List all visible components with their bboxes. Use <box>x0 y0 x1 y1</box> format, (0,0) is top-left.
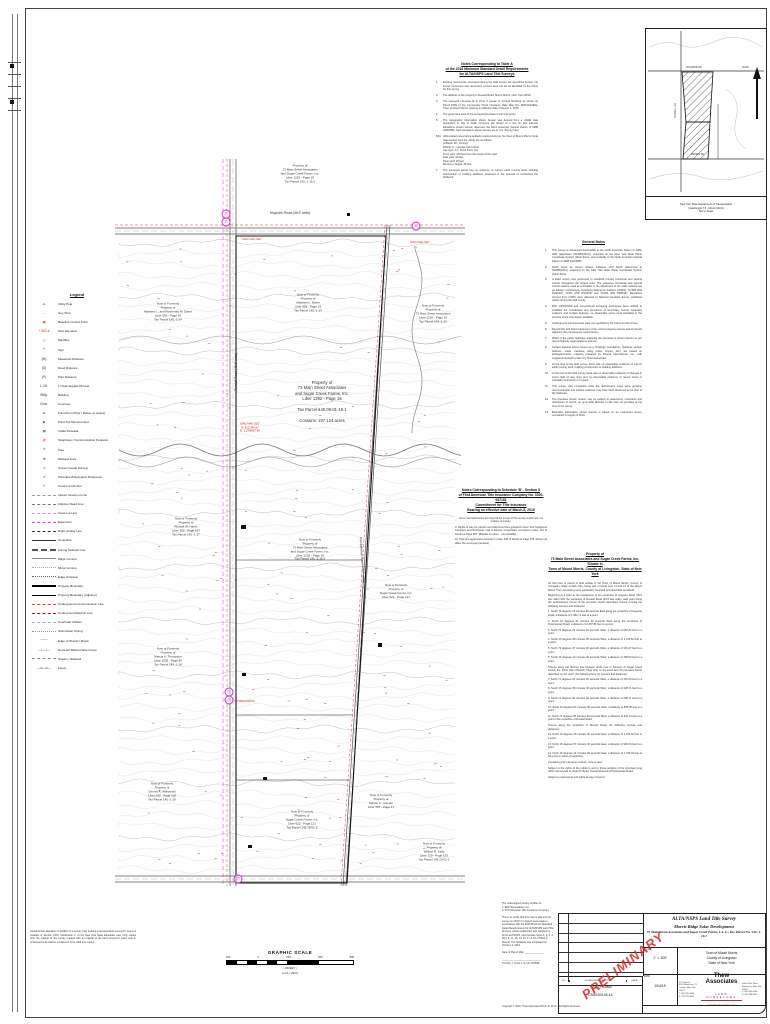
note-text: The address of the property is Russell R… <box>443 94 538 98</box>
legend-symbol: → <box>30 312 58 315</box>
legend-row: ⑧ Schedule B Exception Reference <box>30 473 124 482</box>
description-paragraph: Thence along the centerline of Russell R… <box>548 724 642 731</box>
note-number: 2. <box>545 266 552 277</box>
legend-symbol <box>30 567 58 570</box>
description-title-line4: Town of Mount Morris, County of Livingst… <box>548 567 642 577</box>
legend-label: Culvert (Aerial Survey) <box>58 467 88 470</box>
firm-subtitle: LAND SURVEYORS <box>701 993 742 1001</box>
legend-row: ● Found Iron (Pipe / Rebar, et cetera) <box>30 409 124 418</box>
legend-label: Underground Electric Line <box>58 612 93 615</box>
legend-row: ᴖᴖᴖᴖ Edge of Woods / Brush <box>30 636 124 645</box>
legend-row: Edge of Gravel <box>30 573 124 582</box>
legend-row: Stormwater Piping <box>30 627 124 636</box>
note-text: At the time of the field survey there wa… <box>552 363 642 370</box>
description-paragraph: 10. South 16 degrees 04 minutes 30 secon… <box>548 706 642 713</box>
legend-row: Bldg. Building <box>30 391 124 400</box>
note-text: The surveyed premises lie in Zone X (are… <box>443 100 538 111</box>
legend-row: Property Boundary (Adjoiner) <box>30 591 124 600</box>
legend-row: (M) Measured Distance <box>30 355 124 364</box>
schedule-b-note: Items not listed below are beyond the sc… <box>455 517 547 524</box>
legend-symbol <box>30 603 58 606</box>
description-paragraph: Containing 197.124 acres of land, more o… <box>548 761 642 765</box>
legend-label: Measured Distance <box>58 358 84 361</box>
legend-symbol: -●- <box>30 303 58 306</box>
legend-symbol <box>30 612 58 615</box>
legend-label: Centerline <box>58 539 72 542</box>
scale-tick-label: 200 <box>286 956 290 959</box>
location-cell: Town of Mount Morris County of Livingsto… <box>677 947 765 974</box>
inset-caption: New York State Department of Transportat… <box>646 196 766 220</box>
legend-symbol: ◻ <box>30 339 58 342</box>
general-note-item: 2. North arrow as shown hereon indicates… <box>545 266 642 277</box>
legend-symbol: ■ <box>30 421 58 424</box>
project-number-cell: PROJECT NUMBER CN2040/145-16 <box>559 985 643 1013</box>
revision-table <box>559 914 644 976</box>
description-paragraph: 3. North 74 degrees 23 minutes 30 second… <box>548 629 642 636</box>
description-paragraph: 14. North 16 degrees 11 minutes 00 secon… <box>548 752 642 759</box>
legend-label: Cable Pedestal <box>58 430 78 433</box>
legend-symbol <box>30 494 58 497</box>
legend-label: Stormwater Piping <box>58 630 83 633</box>
legend-symbol: (P) <box>30 376 58 379</box>
road-russell <box>227 159 236 886</box>
legend-symbol <box>30 621 58 624</box>
legend-label: Mail Box <box>58 339 70 342</box>
legend-symbol: + 582.4 <box>30 330 58 333</box>
drawing-title-line2: Morris Ridge Solar Development <box>643 924 765 929</box>
general-note-item: 12. The premises shown hereon may be sub… <box>545 398 642 409</box>
drawing-title-line1: ALTA/NSPS Land Title Survey <box>643 917 765 922</box>
legend-label: Fence <box>58 667 66 670</box>
title-block: NO. LOCATION/DESCRIPTION DATE PROJECT NU… <box>558 913 766 1014</box>
description-paragraph: Subject to easements and rights-of-way o… <box>548 776 642 780</box>
legend-label: Minor Contour <box>58 567 77 570</box>
general-note-item: 7. Width of the public highways adjoinin… <box>545 337 642 344</box>
firm-address-right: Office Park West Watertown, New York 136… <box>742 983 765 997</box>
note-number: 4. <box>436 113 443 117</box>
legend-symbol: ᴖᴖᴖᴖ <box>30 639 58 642</box>
contour-lines <box>119 239 455 874</box>
scale-label: SCALE <box>643 948 677 951</box>
road-presbyterian <box>341 225 390 886</box>
description-paragraph: 1. South 74 degrees 19 minutes 30 second… <box>548 610 642 617</box>
legend-label: Remnant Barbed Wire Fence <box>58 649 97 652</box>
note-text: North arrow as shown hereon indicates Gr… <box>552 266 642 277</box>
note-number: 4. <box>545 305 552 319</box>
legend-label: Stream / Wetland <box>58 658 81 661</box>
graphic-scale-title: GRAPHIC SCALE <box>226 950 354 955</box>
legend-symbol: ⊃ <box>30 467 58 470</box>
legend-symbol: ▤ <box>30 430 58 433</box>
table-a-item: 5. The topographic information shown her… <box>436 119 538 133</box>
note-text: The gross land area of the surveyed prem… <box>443 113 538 117</box>
legend-row: Major Contour <box>30 555 124 564</box>
date-label: DATE <box>643 975 677 978</box>
legend-row: ✳ Tree <box>30 446 124 455</box>
legend-row: ⊢ Sign <box>30 345 124 354</box>
road-hogmire <box>115 225 465 234</box>
general-note-item: 6. Record title and deed references of t… <box>545 328 642 335</box>
note-text: This survey was completed while the land… <box>552 385 642 396</box>
graphic-scale-bar <box>226 960 354 966</box>
note-text: RTK GPS/GNSS and conventional surveying … <box>552 305 642 319</box>
legend-symbol <box>30 548 58 551</box>
graphic-scale-ratio: 1 inch = 200 ft. <box>226 972 354 976</box>
table-a-item: 7. The surveyed parcel has no evidence o… <box>436 169 538 180</box>
legend-row: ▥ Telephone / Communication Pedestal <box>30 436 124 445</box>
legend-row: ◻ Mail Box <box>30 336 124 345</box>
north-arrow <box>753 67 761 119</box>
description-paragraph: Subject to the rights of the public in a… <box>548 767 642 774</box>
note-number: 11. <box>545 385 552 396</box>
legend-label: Schedule B Exception Reference <box>58 476 102 479</box>
legend-symbol <box>30 585 58 588</box>
location-line1: Town of Mount Morris <box>678 951 765 955</box>
description-paragraph: Thence along the division line between l… <box>548 666 642 677</box>
note-text: Width of the public highways adjoining t… <box>552 337 642 344</box>
legend-row: Underground Communication Line <box>30 600 124 609</box>
legend-symbol <box>30 512 58 515</box>
surveyor-law-note: Unauthorized alteration or addition to a… <box>30 930 136 944</box>
note-text: Surface features shown hereon (e.g. buil… <box>552 346 642 360</box>
legend-symbol <box>30 558 58 561</box>
description-paragraph: 7. North 74 degrees 02 minutes 00 second… <box>548 678 642 685</box>
legend-row: 5 Great Lot Number <box>30 482 124 491</box>
drawing-title-line3: 73 Main Street Associates and Sugar Cree… <box>643 930 765 938</box>
description-paragraph: 9. North 74 degrees 02 minutes 00 second… <box>548 697 642 704</box>
schedule-b-item: 10. Pipe line agreement recorded in Libe… <box>455 538 547 545</box>
firm-logo: Thew Associates LAND SURVEYORS www.ThewA… <box>701 973 742 1007</box>
legend-symbol: ⊢ <box>30 348 58 351</box>
note-number: 9. <box>545 363 552 370</box>
location-map-inset: HOGMIRE RD ROAD PERRIN RD RUSSELL RD New… <box>645 28 767 220</box>
note-text: Abbreviated notes listing setback requir… <box>443 135 538 167</box>
note-text: The topographic information shown hereon… <box>443 119 538 133</box>
table-a-item: 2. The address of the property is Russel… <box>436 94 538 98</box>
drawing-title-cell: ALTA/NSPS Land Title Survey Morris Ridge… <box>643 914 765 947</box>
firm-address-left: P.O. Box 61 4051 State Hwy. 11 Canton, N… <box>678 982 701 999</box>
property-boundary <box>236 236 386 883</box>
legend-symbol: (D) <box>30 367 58 370</box>
legend-row: ■ Point Not Monumented <box>30 418 124 427</box>
legend-row: —o—o— Fence <box>30 664 124 673</box>
revision-col-description: LOCATION/DESCRIPTION <box>570 980 626 982</box>
scale-tick-label: 800 <box>350 956 354 959</box>
copyright-line: Copyright © 2019, Thew Associates PE & L… <box>502 1005 662 1008</box>
legend-row: + 582.4 Spot Elevation <box>30 327 124 336</box>
note-text: Boundary information shown hereon is bas… <box>552 411 642 418</box>
note-text: A static survey was performed to establi… <box>552 278 642 303</box>
legend-label: Great Lot Number <box>58 485 82 488</box>
legend-row: ▣ Baseline Control Point <box>30 318 124 327</box>
graphic-scale: GRAPHIC SCALE 2000200400800 ( IN FEET ) … <box>226 950 354 976</box>
legend-row: Overhead Utilities <box>30 618 124 627</box>
legend-label: Property Boundary (Adjoiner) <box>58 594 97 597</box>
revision-col-no: NO. <box>559 980 570 982</box>
legend-label: Building <box>58 394 69 397</box>
table-a-heading: Notes Corresponding to Table A of the 20… <box>436 62 538 77</box>
firm-cell: P.O. Box 61 4051 State Hwy. 11 Canton, N… <box>677 974 765 1005</box>
legend-symbol <box>30 658 58 661</box>
description-paragraph: Beginning at a point at the intersection… <box>548 594 642 608</box>
note-number: 6. <box>545 328 552 335</box>
elevation-ticks <box>126 249 449 864</box>
general-note-item: 10. At the time of the field survey ther… <box>545 372 642 383</box>
general-note-item: 5. Underground improvements were not spe… <box>545 322 642 326</box>
legend-label: Point Not Monumented <box>58 421 89 424</box>
legend-row: —x—x— Remnant Barbed Wire Fence <box>30 646 124 655</box>
date-value: 10/4/19 <box>643 984 677 988</box>
general-note-item: 1. This survey is referenced horizontall… <box>545 249 642 263</box>
legend-symbol <box>30 530 58 533</box>
note-number: 5. <box>436 119 443 133</box>
table-a-item: 6(b). Abbreviated notes listing setback … <box>436 135 538 167</box>
legend-row: Property Boundary <box>30 582 124 591</box>
scale-value: 1" = 200' <box>643 956 677 960</box>
date-cell: DATE 10/4/19 <box>643 974 677 1005</box>
description-paragraph: 4. South 15 degrees 58 minutes 00 second… <box>548 638 642 645</box>
description-paragraph: 8. South 15 degrees 58 minutes 00 second… <box>548 687 642 694</box>
note-number: 10. <box>545 372 552 383</box>
legend-row: Stream / Wetland <box>30 655 124 664</box>
legend-symbol <box>30 521 58 524</box>
note-number: 5. <box>545 322 552 326</box>
legend-symbol: ▥ <box>30 439 58 442</box>
legend: Legend -●- Utility Pole → Guy Wire ▣ Bas… <box>30 292 124 673</box>
inset-road-label-hogmire: HOGMIRE RD <box>686 66 702 69</box>
legend-label: Edge of Gravel <box>58 576 78 579</box>
description-title: Property of 73 Main Street Associates an… <box>548 552 642 578</box>
legend-symbol: —x—x— <box>30 649 58 652</box>
legend-label: Deed Distance <box>58 367 78 370</box>
note-number: 12. <box>545 398 552 409</box>
revision-header-row: NO. LOCATION/DESCRIPTION DATE <box>559 976 643 985</box>
note-text: This survey is referenced horizontally t… <box>552 249 642 263</box>
woods-stream-band <box>119 247 461 467</box>
description-paragraph: All that tract or parcel of land situate… <box>548 582 642 593</box>
legend-label: Utility Pole <box>58 303 72 306</box>
scale-tick-label: 200 <box>226 956 230 959</box>
description-paragraph: 2. South 16 degrees 41 minutes 00 second… <box>548 620 642 627</box>
schedule-b-heading-line2: of First American Title Insurance Compan… <box>455 493 547 503</box>
inset-road-label-russell: RUSSELL RD <box>674 103 677 118</box>
legend-label: Major Contour <box>58 558 77 561</box>
note-number: 7. <box>545 337 552 344</box>
legend-symbol <box>30 503 58 506</box>
certification-block: The undersigned hereby certifies to: 1. … <box>502 902 554 965</box>
legend-row: Zoning Setback Line <box>30 546 124 555</box>
legend-label: Underground Communication Line <box>58 603 104 606</box>
legend-row: 1 CH. 1 Chain Equals 66 Feet <box>30 382 124 391</box>
legend-symbol: 5 <box>30 485 58 488</box>
legend-row: ▤ Cable Pedestal <box>30 427 124 436</box>
table-a-item: 4. The gross land area of the surveyed p… <box>436 113 538 117</box>
legend-row: → Guy Wire <box>30 309 124 318</box>
legend-row: Minor Contour <box>30 564 124 573</box>
general-note-item: 9. At the time of the field survey there… <box>545 363 642 370</box>
legend-symbol: (M) <box>30 358 58 361</box>
legend-label: Great Lot Line <box>58 512 77 515</box>
legend-title: Legend <box>30 292 124 297</box>
schedule-b-heading: Notes Corresponding to Schedule 'B' - Se… <box>455 488 547 514</box>
legend-symbol: Bldg. <box>30 394 58 397</box>
legend-row: -●- Utility Pole <box>30 300 124 309</box>
note-text: Existing monuments recovered during the … <box>443 81 538 92</box>
general-note-item: 8. Surface features shown hereon (e.g. b… <box>545 346 642 360</box>
legend-label: Plan Distance <box>58 376 77 379</box>
project-number-label: PROJECT NUMBER <box>559 986 642 989</box>
inset-road-label-perrin: PERRIN RD <box>691 153 704 156</box>
legend-label: Zoning Setback Line <box>58 549 85 552</box>
general-notes: General Notes 1. This survey is referenc… <box>545 240 642 420</box>
table-a-notes: Notes Corresponding to Table A of the 20… <box>436 62 538 182</box>
legend-row: Easement <box>30 518 124 527</box>
legend-symbol: Conc. <box>30 403 58 406</box>
general-note-item: 3. A static survey was performed to esta… <box>545 278 642 303</box>
legend-label: Overhead Utilities <box>58 621 82 624</box>
legend-row: Adjoiner Deed Line <box>30 500 124 509</box>
project-number-value: CN2040/145-16 <box>559 993 642 997</box>
inset-parcel-hatch-upper <box>682 72 713 122</box>
inset-road-label-road: ROAD <box>742 66 749 69</box>
legend-symbol: ⑧ <box>30 476 58 479</box>
legend-label: Tree <box>58 449 64 452</box>
note-number: 6(b). <box>436 135 443 167</box>
note-number: 13. <box>545 411 552 418</box>
schedule-b-item: 9. Rights of way for electric and teleph… <box>455 526 547 537</box>
legend-symbol: 1 CH. <box>30 385 58 388</box>
note-text: The premises shown hereon may be subject… <box>552 398 642 409</box>
note-number: 1. <box>545 249 552 263</box>
scale-tick-label: 400 <box>318 956 322 959</box>
note-text: Record title and deed references of the … <box>552 328 642 335</box>
note-number: 3. <box>436 100 443 111</box>
legend-row: Underground Electric Line <box>30 609 124 618</box>
legend-symbol: ● <box>30 412 58 415</box>
legend-label: Spot Elevation <box>58 330 77 333</box>
note-number: 2. <box>436 94 443 98</box>
legend-label: Telephone / Communication Pedestal <box>58 439 108 442</box>
legend-label: Baseline Control Point <box>58 321 88 324</box>
legend-label: Adjoiner Deed Line <box>58 503 84 506</box>
legend-row: Centerline <box>30 536 124 545</box>
legend-label: Easement <box>58 521 72 524</box>
legend-symbol <box>30 539 58 542</box>
legend-symbol: —o—o— <box>30 667 58 670</box>
legend-label: Wetland Area <box>58 458 76 461</box>
legend-row: Interior Great Lot Line <box>30 491 124 500</box>
graphic-scale-units: ( IN FEET ) <box>226 967 354 971</box>
note-text: Underground improvements were not specif… <box>552 322 642 326</box>
legend-label: Guy Wire <box>58 312 71 315</box>
road-bottom <box>115 876 465 882</box>
scale-cell: SCALE 1" = 200' <box>643 947 677 974</box>
parcel-description: Property of 73 Main Street Associates an… <box>548 552 642 781</box>
description-paragraph: 11. North 73 degrees 55 minutes 30 secon… <box>548 715 642 722</box>
legend-label: Right-of-Way Line <box>58 530 82 533</box>
firm-name: Thew Associates <box>701 973 742 985</box>
legend-label: Sign <box>58 349 64 352</box>
note-number: 7. <box>436 169 443 180</box>
legend-row: Great Lot Line <box>30 509 124 518</box>
legend-row: ⊃ Culvert (Aerial Survey) <box>30 464 124 473</box>
legend-symbol: ▣ <box>30 321 58 324</box>
survey-sheet: Property of 73 Main Street Associates an… <box>0 0 770 1024</box>
note-number: 1. <box>436 81 443 92</box>
note-text: The surveyed parcel has no evidence of c… <box>443 169 538 180</box>
description-paragraph: 12. North 16 degrees 08 minutes 00 secon… <box>548 733 642 740</box>
legend-symbol: ❖ <box>30 458 58 461</box>
table-a-item: 3. The surveyed premises lie in Zone X (… <box>436 100 538 111</box>
legend-label: Interior Great Lot Line <box>58 494 87 497</box>
general-note-item: 4. RTK GPS/GNSS and conventional surveyi… <box>545 305 642 319</box>
legend-row: ❖ Wetland Area <box>30 455 124 464</box>
scale-tick-label: 0 <box>258 956 259 959</box>
revision-col-date: DATE <box>626 980 642 982</box>
table-a-item: 1. Existing monuments recovered during t… <box>436 81 538 92</box>
legend-symbol <box>30 576 58 579</box>
location-line2: County of Livingston <box>678 956 765 960</box>
inset-caption-line3: Not to Scale <box>646 210 766 214</box>
note-number: 3. <box>545 278 552 303</box>
general-note-item: 11. This survey was completed while the … <box>545 385 642 396</box>
legend-row: (D) Deed Distance <box>30 364 124 373</box>
legend-label: Concrete <box>58 403 70 406</box>
schedule-b-notes: Notes Corresponding to Schedule 'B' - Se… <box>455 488 547 548</box>
legend-row: (P) Plan Distance <box>30 373 124 382</box>
description-paragraph: 6. South 16 degrees 12 minutes 30 second… <box>548 656 642 663</box>
inset-map-graphic <box>646 29 766 196</box>
description-paragraph: 5. North 73 degrees 47 minutes 30 second… <box>548 647 642 654</box>
location-line3: State of New York <box>678 961 765 965</box>
legend-label: 1 Chain Equals 66 Feet <box>58 385 89 388</box>
legend-symbol <box>30 630 58 633</box>
survey-map <box>115 155 465 890</box>
description-paragraph: 13. North 15 degrees 57 minutes 30 secon… <box>548 743 642 750</box>
legend-symbol <box>30 594 58 597</box>
legend-symbol: ✳ <box>30 448 58 451</box>
schedule-b-heading-line4: Bearing an effective date of March 8, 20… <box>455 508 547 513</box>
legend-label: Found Iron (Pipe / Rebar, et cetera) <box>58 412 105 415</box>
legend-label: Edge of Woods / Brush <box>58 640 89 643</box>
legend-row: Conc. Concrete <box>30 400 124 409</box>
legend-label: Property Boundary <box>58 585 83 588</box>
note-text: At the time of the field survey there wa… <box>552 372 642 383</box>
legend-row: Right-of-Way Line <box>30 527 124 536</box>
note-number: 8. <box>545 346 552 360</box>
general-note-item: 13. Boundary information shown hereon is… <box>545 411 642 418</box>
